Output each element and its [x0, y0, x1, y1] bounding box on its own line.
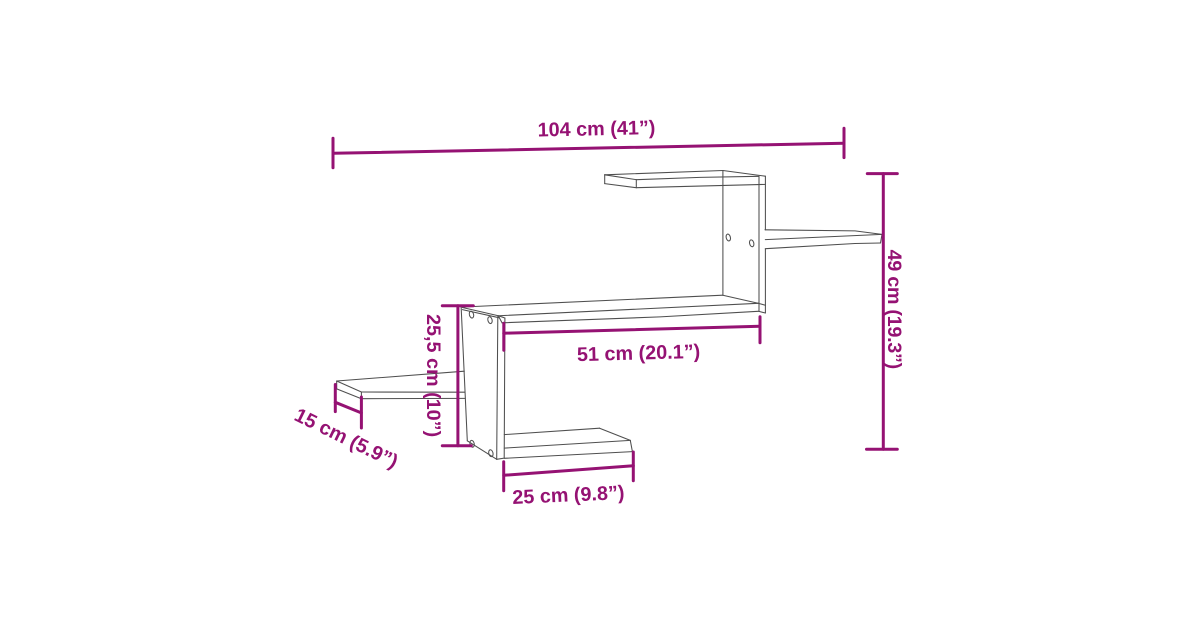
svg-text:15 cm (5.9”): 15 cm (5.9”)	[291, 404, 401, 473]
svg-text:104 cm (41”): 104 cm (41”)	[537, 117, 655, 141]
svg-text:25 cm (9.8”): 25 cm (9.8”)	[512, 482, 625, 509]
svg-text:49 cm (19.3”): 49 cm (19.3”)	[883, 250, 905, 369]
svg-text:51 cm (20.1”): 51 cm (20.1”)	[577, 341, 701, 366]
svg-text:25,5 cm (10”): 25,5 cm (10”)	[422, 314, 444, 437]
